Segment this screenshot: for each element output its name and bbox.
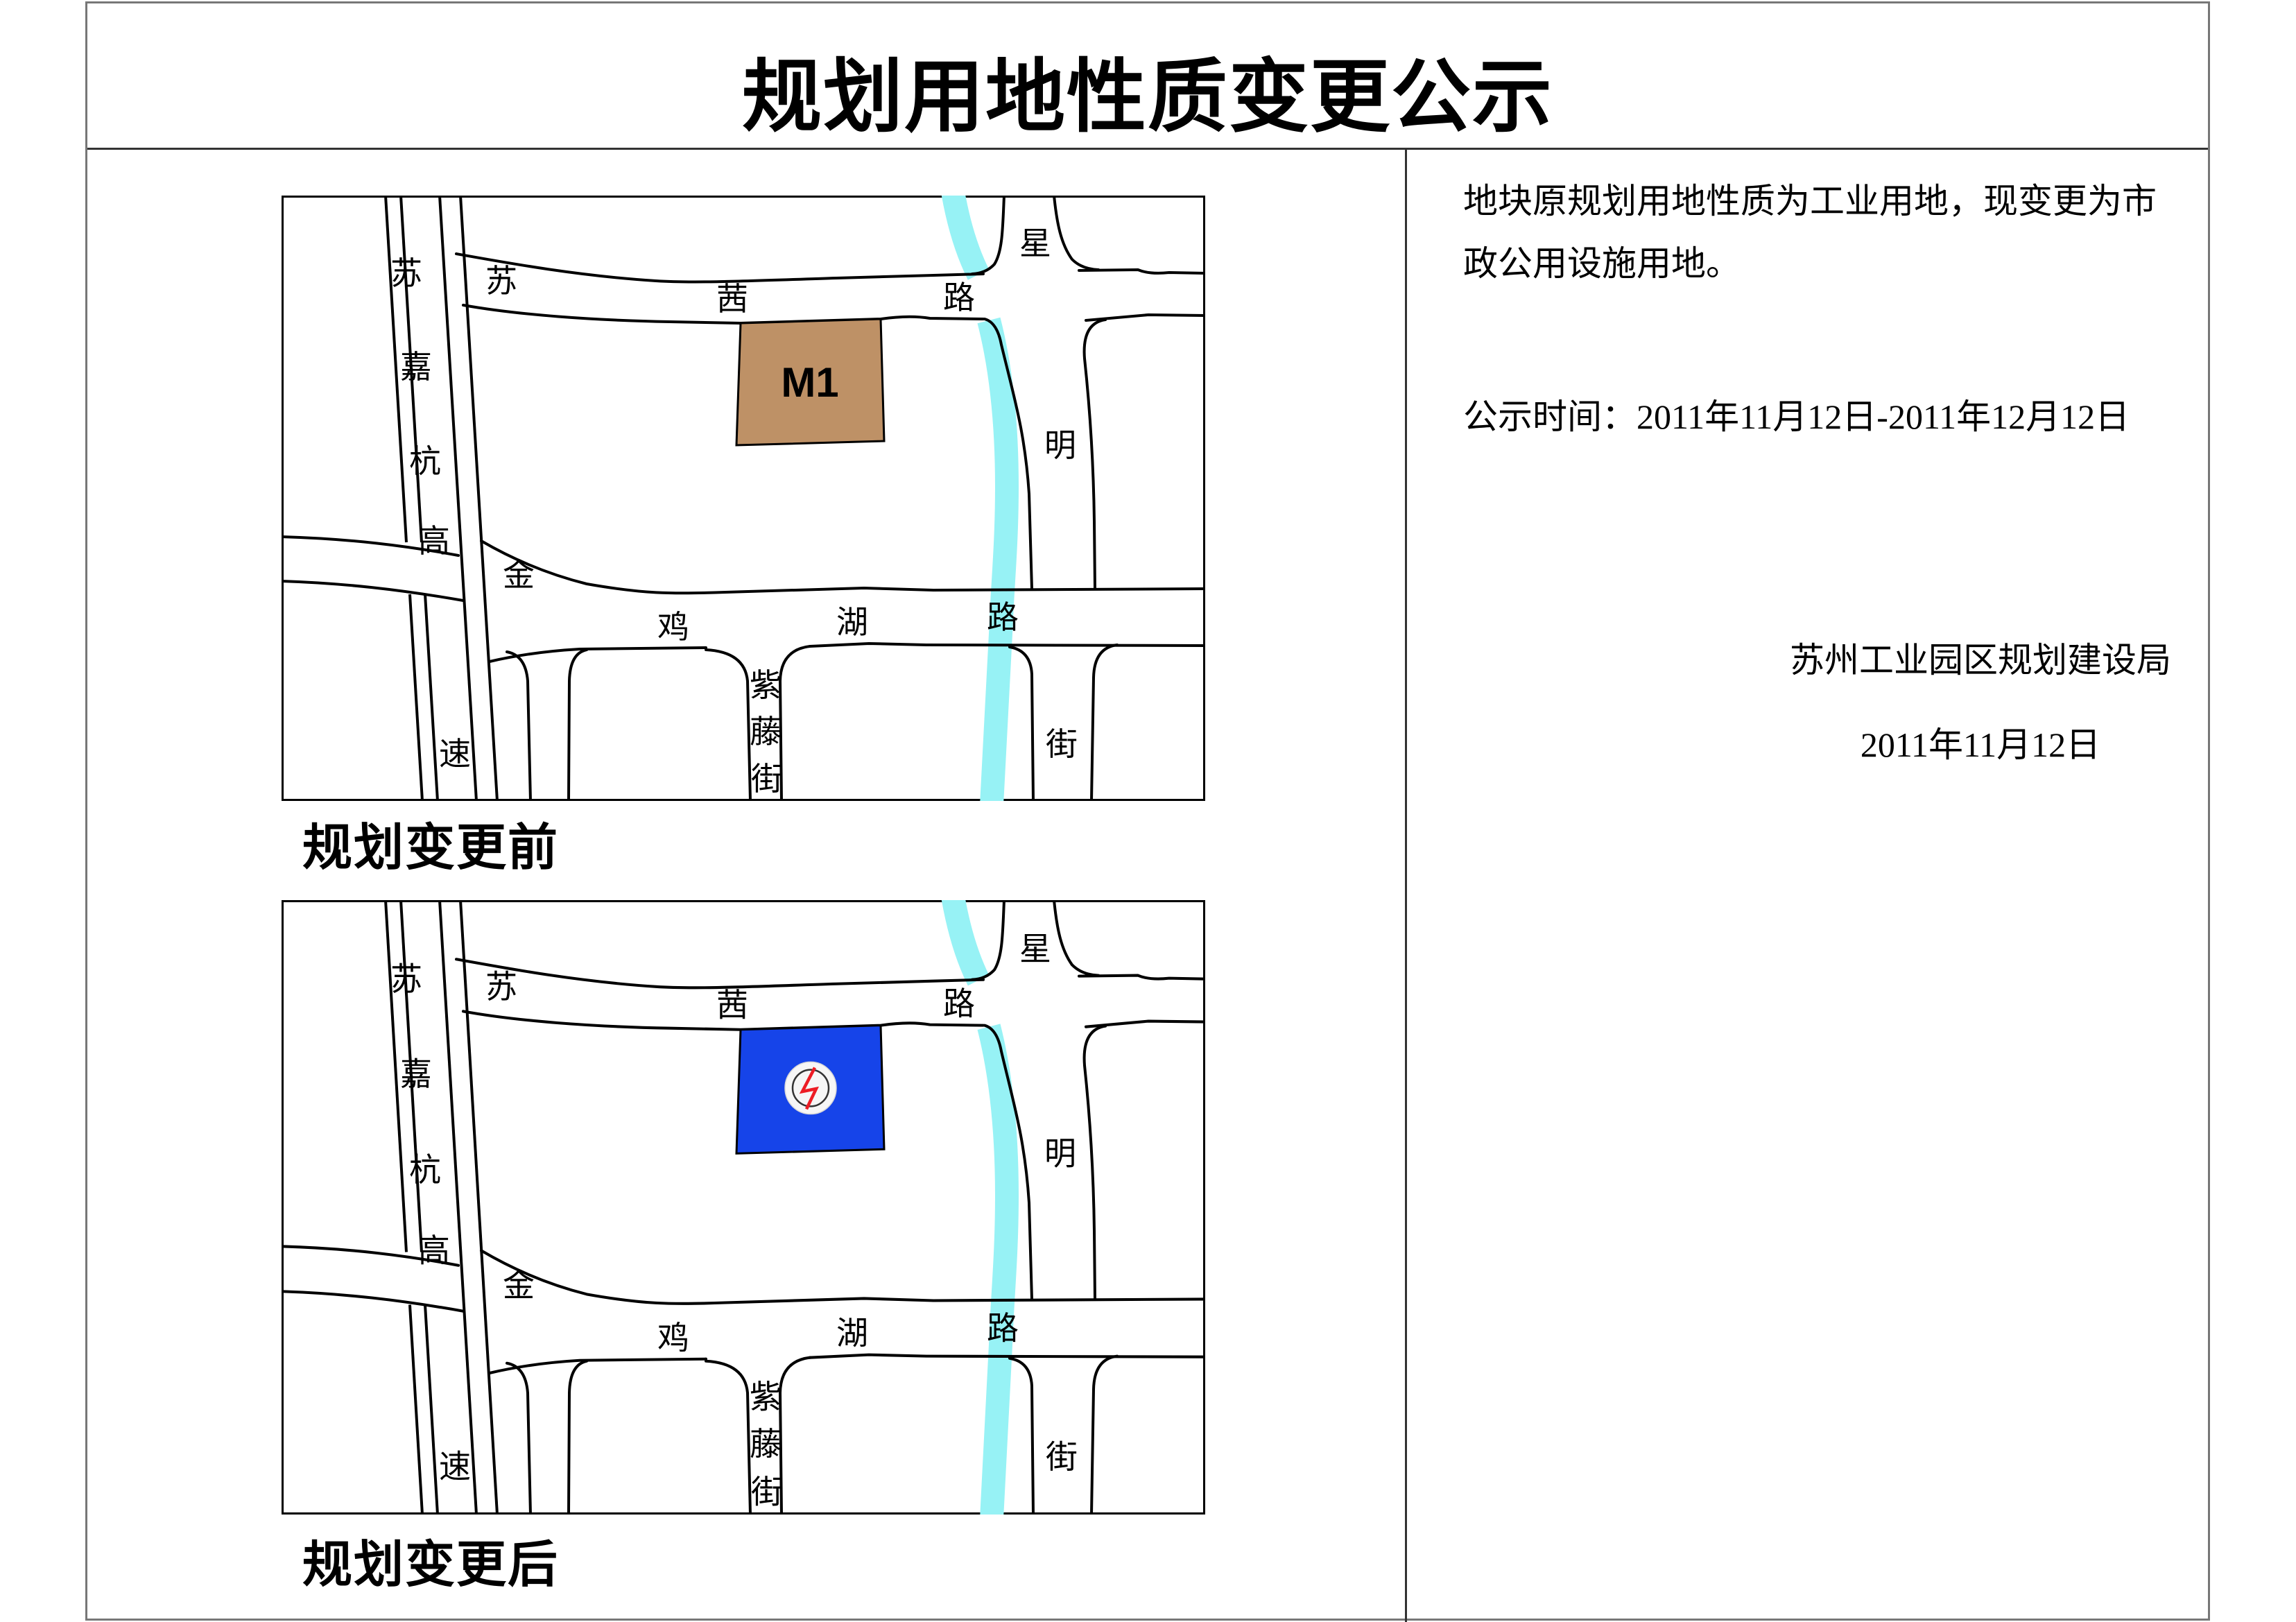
column-divider-line xyxy=(1405,150,1407,1622)
map-before-change: M1 xyxy=(282,196,1205,801)
planning-notice-page: 规划用地性质变更公示 xyxy=(0,0,2296,1622)
title-separator-line xyxy=(87,148,2208,150)
notice-paragraph-line2: 政公用设施用地。 xyxy=(1463,232,2233,295)
notice-paragraph-line1: 地块原规划用地性质为工业用地，现变更为市 xyxy=(1463,170,2233,232)
notice-paragraph: 地块原规划用地性质为工业用地，现变更为市 政公用设施用地。 xyxy=(1463,170,2233,295)
caption-before: 规划变更前 xyxy=(302,806,559,879)
notice-period: 公示时间：2011年11月12日-2011年12月12日 xyxy=(1463,389,2261,439)
notice-signature: 苏州工业园区规划建设局 2011年11月12日 xyxy=(1724,618,2237,787)
parcel-industrial: M1 xyxy=(736,319,884,445)
notice-date: 2011年11月12日 xyxy=(1724,702,2237,787)
power-substation-icon xyxy=(785,1062,836,1114)
caption-after: 规划变更后 xyxy=(302,1524,559,1596)
parcel-m1-label: M1 xyxy=(781,359,838,406)
map-after-change xyxy=(282,900,1205,1515)
parcel-municipal xyxy=(736,1026,884,1154)
title-band: 规划用地性质变更公示 xyxy=(87,3,2208,148)
page-title: 规划用地性质变更公示 xyxy=(87,33,2208,148)
notice-authority: 苏州工业园区规划建设局 xyxy=(1724,618,2237,702)
document-sheet: 规划用地性质变更公示 xyxy=(85,1,2210,1621)
